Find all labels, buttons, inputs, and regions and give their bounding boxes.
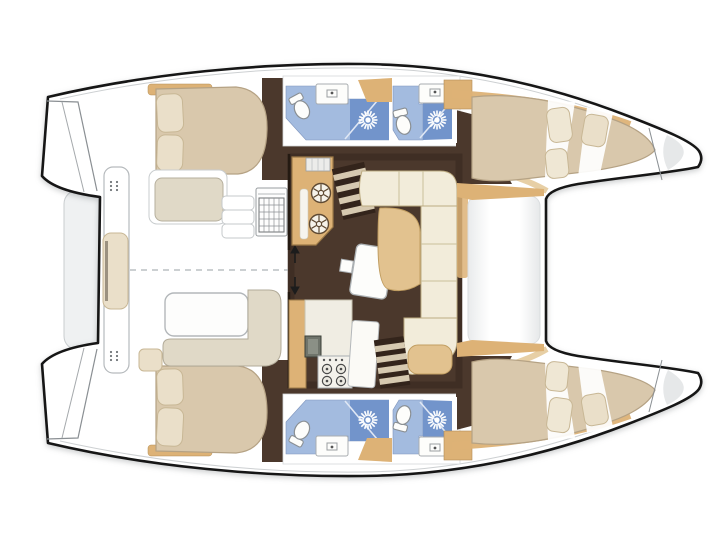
forward-lounge-deck xyxy=(468,196,540,344)
nav-cabinet xyxy=(408,345,452,374)
boarding-steps xyxy=(222,196,254,238)
floorplan-page xyxy=(0,0,720,540)
counter-edge-strip xyxy=(300,189,308,239)
cushion-seam xyxy=(105,241,108,301)
galley-cabinet xyxy=(289,300,306,388)
aft-cabin-bed xyxy=(156,87,267,174)
pillow xyxy=(156,93,184,132)
faucet xyxy=(434,91,437,94)
stern-platform xyxy=(64,190,102,350)
tilted-counter xyxy=(348,320,380,388)
corner-cushion xyxy=(139,349,162,371)
sofa-right-arm xyxy=(421,206,457,318)
sofa-backrest-rail xyxy=(457,194,468,278)
side-bench-cushion xyxy=(155,178,223,221)
forward-cockpit xyxy=(457,183,544,357)
pillow xyxy=(580,113,609,148)
pillow xyxy=(546,106,574,143)
cockpit-table xyxy=(165,293,248,336)
oven-door xyxy=(308,339,318,354)
pillow xyxy=(156,135,183,172)
catamaran-floorplan xyxy=(0,0,720,540)
faucet xyxy=(331,92,334,95)
aft-galley xyxy=(292,157,333,245)
cockpit-fridge-module xyxy=(256,188,287,236)
pillow xyxy=(545,148,570,179)
forward-head xyxy=(393,84,452,140)
table-support xyxy=(340,259,354,273)
chaise-cushion xyxy=(378,208,420,291)
saloon xyxy=(288,154,468,389)
sofa-top-arm xyxy=(360,171,458,206)
